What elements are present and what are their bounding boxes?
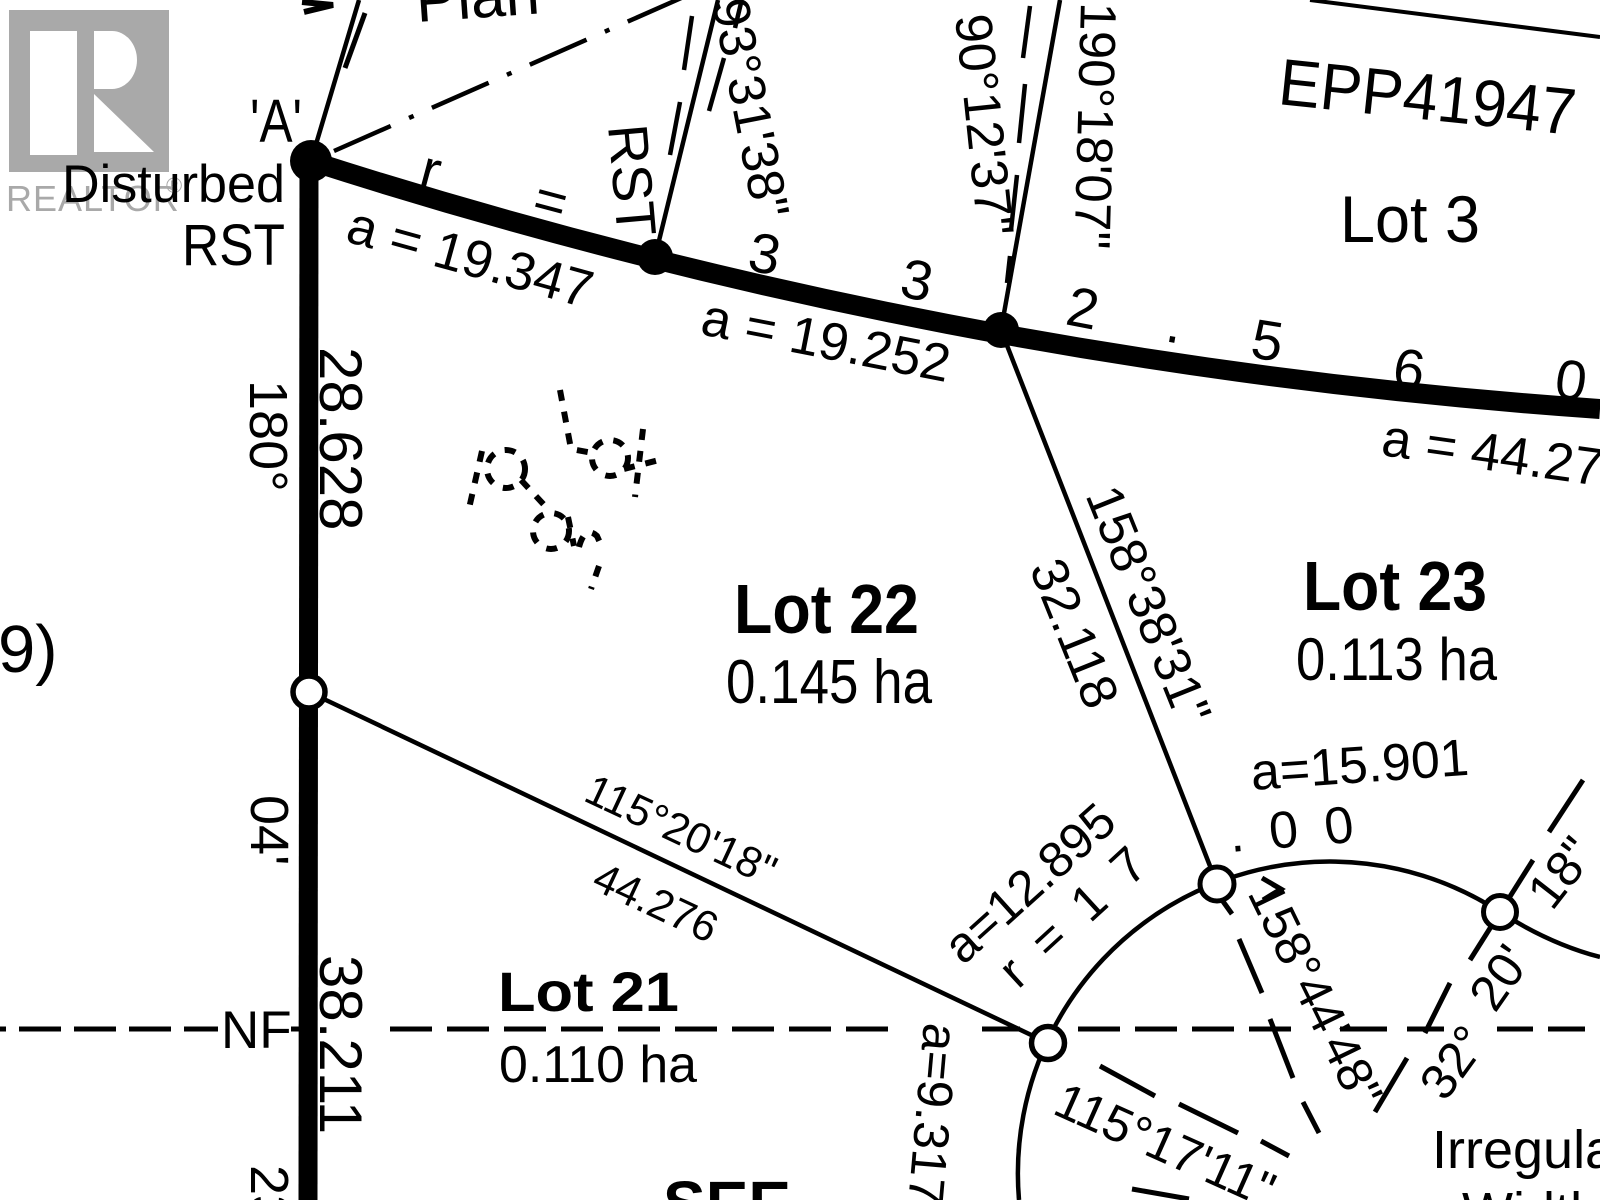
svg-text:SEE: SEE <box>663 1168 791 1200</box>
svg-text:180°: 180° <box>238 380 298 492</box>
svg-text:0: 0 <box>1266 800 1301 861</box>
svg-text:23": 23" <box>239 1165 299 1200</box>
svg-text:Disturbed: Disturbed <box>62 155 285 214</box>
svg-text:9): 9) <box>0 612 58 687</box>
svg-text:Lot 23: Lot 23 <box>1303 547 1487 625</box>
svg-text:Irregular: Irregular <box>1432 1120 1600 1180</box>
svg-text:RST: RST <box>182 213 285 278</box>
svg-text:0.113 ha: 0.113 ha <box>1296 626 1498 693</box>
svg-text:04': 04' <box>239 795 299 865</box>
svg-text:Lot 3: Lot 3 <box>1340 182 1480 256</box>
svg-text:0.145 ha: 0.145 ha <box>726 648 932 717</box>
svg-text:Width: Width <box>1462 1182 1600 1200</box>
svg-text:'A': 'A' <box>250 87 302 155</box>
svg-text:Lot 22: Lot 22 <box>734 570 919 648</box>
svg-text:190°18'07": 190°18'07" <box>1064 2 1127 250</box>
svg-text:Lot 21: Lot 21 <box>498 960 679 1023</box>
svg-text:38.211: 38.211 <box>307 955 374 1134</box>
svg-text:RST: RST <box>596 122 669 239</box>
svg-text:0.110 ha: 0.110 ha <box>499 1036 697 1094</box>
svg-text:28.628: 28.628 <box>307 347 374 531</box>
svg-text:NF: NF <box>221 1001 292 1060</box>
